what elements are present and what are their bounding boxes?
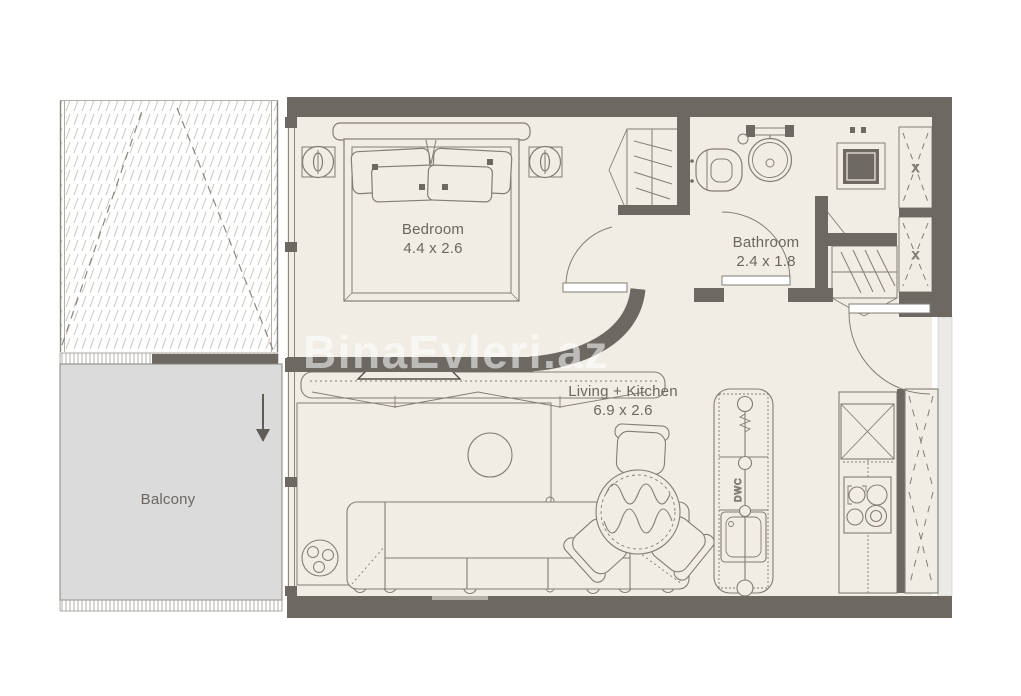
tall-cabinet — [905, 389, 938, 593]
closet-x-mark: X — [912, 250, 920, 262]
counter-divider-wall — [897, 389, 905, 593]
living-kitchen-name: Living + Kitchen — [568, 383, 678, 400]
balcony-lower-railing — [60, 600, 282, 611]
nightstand-right — [529, 147, 562, 178]
dining-chair — [613, 424, 669, 476]
floor-plan: X X — [0, 0, 1021, 696]
wall-bathroom-south — [694, 288, 724, 302]
wall-bottom — [287, 596, 952, 618]
cooktop — [844, 477, 891, 533]
wall-right — [932, 97, 952, 317]
closet-x-mark: X — [912, 163, 920, 175]
balcony-label: Balcony — [105, 490, 231, 509]
bathroom-name: Bathroom — [733, 234, 800, 251]
wardrobe-closet-lower: X — [899, 217, 932, 292]
plant — [302, 540, 338, 576]
wall-bathroom-west — [677, 117, 690, 212]
bathroom-dimensions: 2.4 x 1.8 — [700, 252, 832, 271]
bed-headboard — [333, 123, 530, 140]
void-hatched-area — [60, 100, 278, 352]
balcony-area — [60, 364, 282, 611]
kitchen-sink — [721, 512, 766, 562]
wardrobe-closet-upper: X — [899, 127, 932, 208]
wall-top — [287, 97, 952, 117]
right-boundary-strip — [938, 317, 952, 596]
dishwasher-label: DWC — [733, 478, 743, 503]
nightstand-left — [302, 147, 335, 178]
bedroom-label: Bedroom 4.4 x 2.6 — [363, 220, 503, 258]
balcony-railing-strip — [60, 353, 278, 364]
bedroom-name: Bedroom — [402, 221, 464, 238]
living-kitchen-label: Living + Kitchen 6.9 x 2.6 — [542, 382, 704, 420]
bathroom-label: Bathroom 2.4 x 1.8 — [700, 233, 832, 271]
bedroom-dimensions: 4.4 x 2.6 — [363, 239, 503, 258]
balcony-floor — [60, 364, 282, 600]
balcony-name: Balcony — [141, 491, 196, 508]
watermark: BinaEvleri.az — [303, 325, 609, 379]
kitchen-counter — [839, 392, 897, 593]
living-kitchen-dimensions: 6.9 x 2.6 — [542, 401, 704, 420]
kitchen-island: DWC — [714, 389, 773, 596]
